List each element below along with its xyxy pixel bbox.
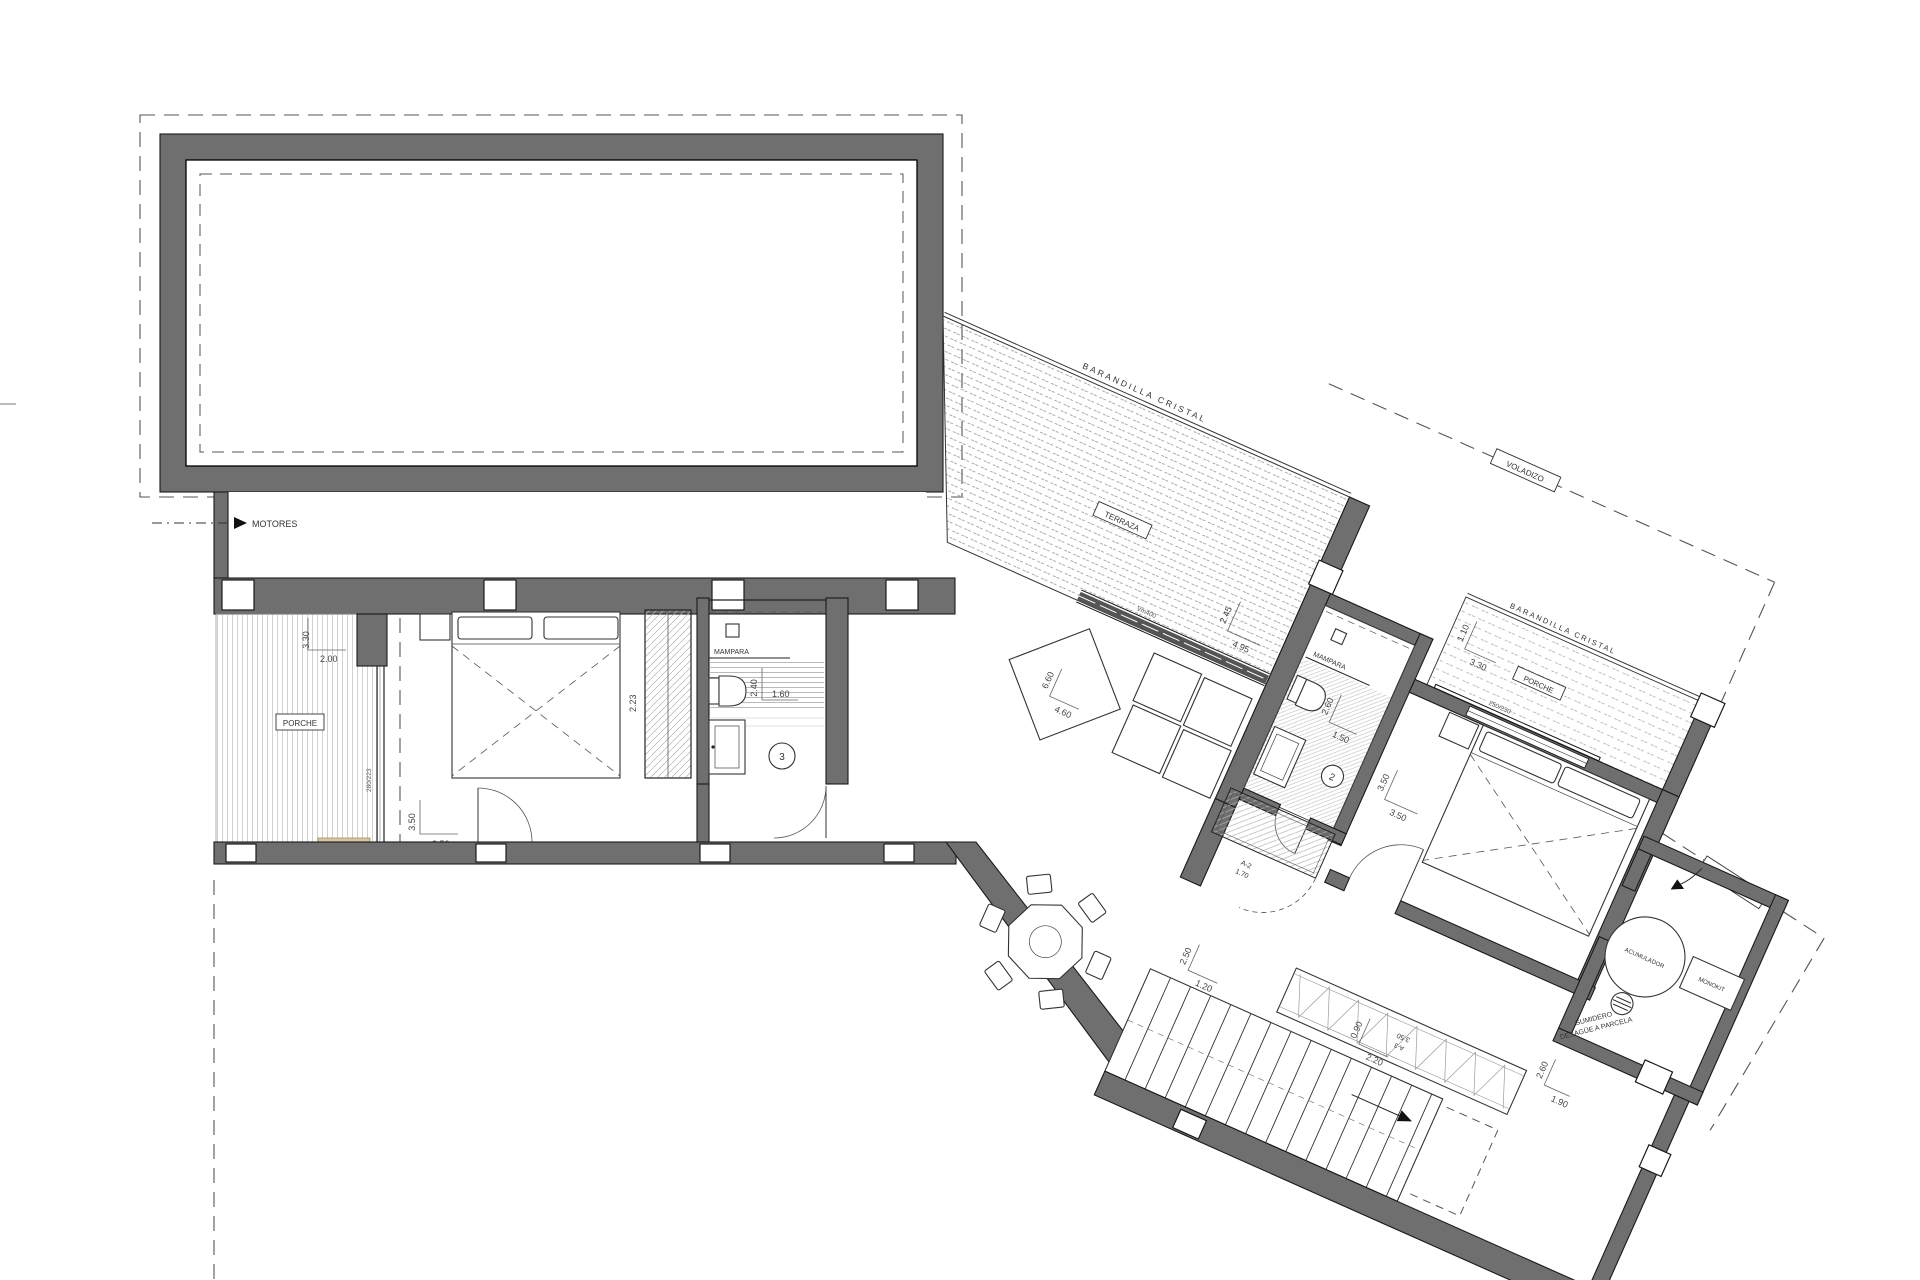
- wardrobe-a2-size: 1.70: [1234, 868, 1249, 880]
- floor-plan-page: MOTORES PORCHE 3.30 2.00 280/223: [0, 0, 1920, 1280]
- wall-stub: [357, 614, 387, 666]
- door-swing: [478, 788, 532, 842]
- motor-corridor: MOTORES: [152, 492, 926, 582]
- dim-utility-h: 1.90: [1549, 1094, 1569, 1110]
- dim-porch-h: 2.00: [320, 654, 338, 664]
- utility-north-wall: [1638, 836, 1788, 913]
- dim-bedroom2-h: 3.50: [1388, 807, 1408, 823]
- bath1-west-wall: [697, 598, 709, 784]
- pillow: [544, 617, 618, 639]
- bedroom1-wardrobe: 2.23: [628, 610, 691, 778]
- porch-left: PORCHE 3.30 2.00: [216, 614, 380, 862]
- floor-plan-canvas: MOTORES PORCHE 3.30 2.00 280/223: [0, 0, 1920, 1280]
- pillar: [712, 580, 744, 610]
- chair: [984, 961, 1013, 991]
- bath1-east-wall: [826, 598, 848, 784]
- bathroom1: MAMPARA 2.40 1.60 3: [697, 598, 848, 842]
- utility-south-wall: [1553, 1028, 1703, 1105]
- faucet-dot: [711, 745, 714, 748]
- chair: [1039, 989, 1065, 1009]
- dim-bath1-v: 2.40: [749, 679, 759, 697]
- chair: [1026, 874, 1052, 894]
- lounge-rug: [1009, 629, 1120, 740]
- dim-leader: [1188, 945, 1229, 984]
- corridor-west-wall: [214, 492, 228, 582]
- motores-label: MOTORES: [252, 519, 297, 529]
- pillar: [484, 580, 516, 610]
- hall-wall: [697, 784, 709, 842]
- pillar: [884, 844, 914, 862]
- bedroom1: 3.50 3.50: [407, 612, 620, 849]
- porch-left-label: PORCHE: [283, 719, 317, 728]
- pillar: [886, 580, 918, 610]
- pillar: [226, 844, 256, 862]
- dim-leader: [420, 800, 458, 834]
- dim-bedroom1-v: 3.50: [407, 813, 417, 831]
- door-leaf: [1401, 850, 1424, 901]
- flow-arrowhead-icon: [1671, 879, 1687, 895]
- pillow: [458, 617, 532, 639]
- pillar: [700, 844, 730, 862]
- window-code: 280/223: [366, 768, 373, 792]
- dim-wardrobe1: 2.23: [628, 694, 638, 712]
- pool: [160, 134, 943, 492]
- wardrobe-a2-code: A-2: [1239, 860, 1252, 871]
- toilet-tank: [709, 678, 719, 704]
- door-swing: [774, 786, 826, 838]
- utility-east-wall: [1685, 895, 1789, 1105]
- chair: [1085, 951, 1111, 980]
- pillar: [476, 844, 506, 862]
- nightstand: [420, 614, 450, 640]
- wing-east-wall: [1578, 1095, 1689, 1280]
- chair: [1078, 893, 1107, 923]
- bedroom2-south-wall: [1325, 869, 1350, 890]
- toilet-bowl: [719, 676, 746, 706]
- vent: [726, 624, 739, 637]
- corridor-floor: [214, 492, 926, 578]
- door-swing: [1350, 827, 1424, 901]
- room-number-3: 3: [779, 752, 785, 763]
- mampara1-label: MAMPARA: [714, 649, 749, 656]
- dim-porch-v: 3.30: [301, 631, 311, 649]
- pillar: [222, 580, 254, 610]
- south-wall: [214, 842, 956, 864]
- pool-basin: [186, 160, 917, 466]
- dim-bath1-h: 1.60: [772, 689, 790, 699]
